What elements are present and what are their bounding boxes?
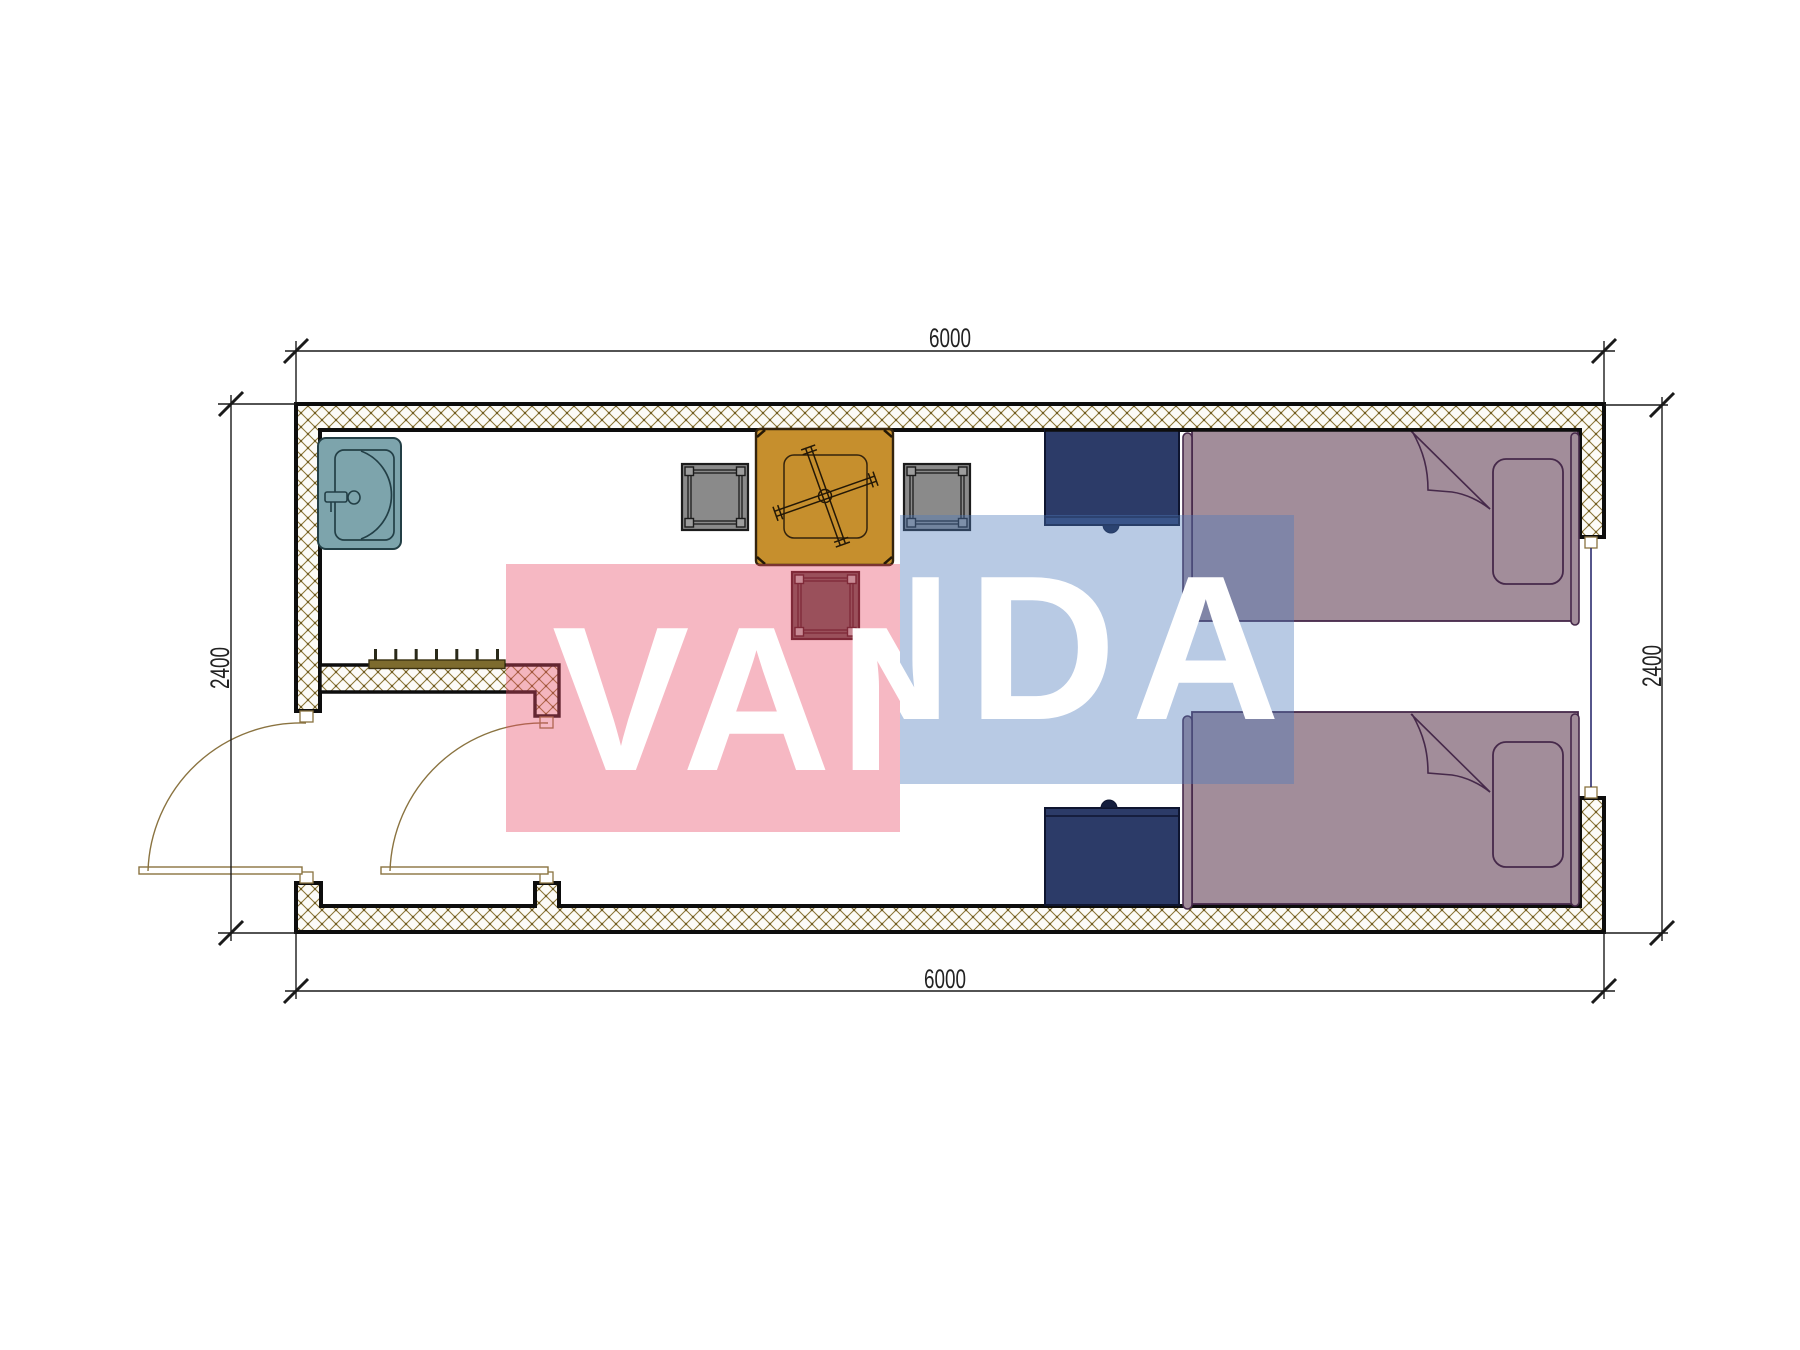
svg-text:2400: 2400 <box>1637 645 1667 687</box>
svg-text:2400: 2400 <box>205 647 235 689</box>
svg-text:6000: 6000 <box>929 323 971 353</box>
svg-text:6000: 6000 <box>924 964 966 994</box>
